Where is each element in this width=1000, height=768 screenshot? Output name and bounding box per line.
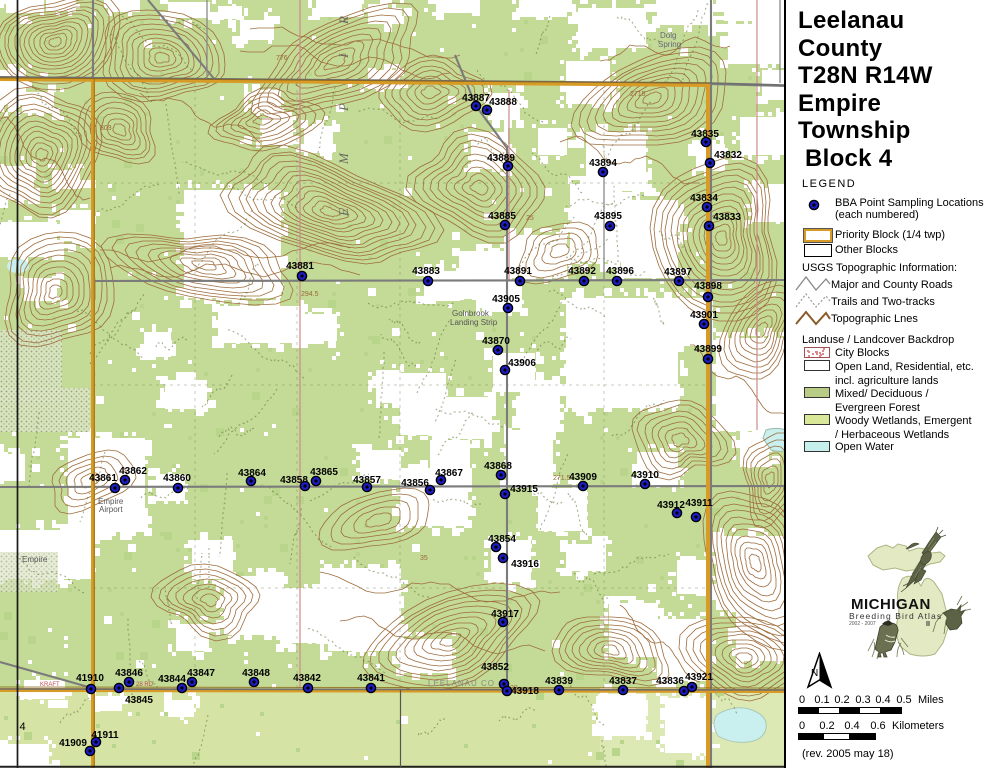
svg-text:43911: 43911: [685, 498, 713, 509]
svg-text:43883: 43883: [412, 266, 440, 277]
svg-text:43852: 43852: [481, 662, 509, 673]
svg-text:43860: 43860: [163, 473, 191, 484]
svg-text:43915: 43915: [510, 484, 538, 495]
svg-text:43896: 43896: [606, 266, 634, 277]
svg-text:KRAFT: KRAFT: [40, 682, 60, 688]
svg-text:43899: 43899: [694, 344, 722, 355]
svg-text:43921: 43921: [685, 672, 713, 683]
svg-text:M: M: [336, 152, 351, 165]
svg-text:Breeding Bird Atlas: Breeding Bird Atlas: [849, 611, 942, 621]
svg-text:294.5: 294.5: [301, 291, 319, 298]
svg-text:271.5: 271.5: [553, 475, 571, 482]
svg-text:43906: 43906: [508, 358, 536, 369]
svg-text:Golnbrook: Golnbrook: [452, 309, 490, 318]
svg-text:43836: 43836: [656, 676, 684, 687]
svg-text:776: 776: [276, 55, 288, 62]
svg-text:Empire: Empire: [22, 555, 48, 564]
svg-text:E: E: [336, 208, 351, 217]
svg-text:N: N: [811, 668, 818, 679]
svg-text:R: R: [336, 16, 351, 25]
svg-text:43891: 43891: [504, 266, 532, 277]
svg-text:43885: 43885: [488, 211, 516, 222]
svg-text:LEELANAU CO: LEELANAU CO: [428, 679, 495, 688]
svg-text:2715: 2715: [630, 91, 646, 98]
svg-text:43861: 43861: [89, 473, 117, 484]
svg-text:43881: 43881: [286, 261, 314, 272]
svg-text:43832: 43832: [714, 150, 742, 161]
svg-text:41910: 41910: [76, 673, 104, 684]
svg-text:4: 4: [20, 721, 26, 733]
svg-text:II: II: [926, 621, 930, 628]
svg-text:25: 25: [526, 215, 534, 222]
svg-text:43868: 43868: [484, 461, 512, 472]
svg-text:43833: 43833: [713, 212, 741, 223]
svg-text:43892: 43892: [568, 266, 596, 277]
svg-text:303: 303: [100, 125, 112, 132]
svg-text:P: P: [336, 103, 351, 112]
svg-text:41909: 41909: [59, 738, 87, 749]
svg-text:43918: 43918: [511, 686, 539, 697]
svg-text:Spring: Spring: [658, 40, 681, 49]
svg-text:43912: 43912: [657, 500, 685, 511]
svg-text:28 RD: 28 RD: [136, 682, 154, 688]
svg-text:I: I: [336, 53, 351, 59]
svg-text:2002 - 2007: 2002 - 2007: [849, 621, 876, 627]
svg-text:43898: 43898: [694, 281, 722, 292]
svg-text:43834: 43834: [690, 193, 718, 204]
svg-text:Airport: Airport: [99, 505, 123, 514]
svg-text:43856: 43856: [401, 478, 429, 489]
svg-text:35: 35: [420, 555, 428, 562]
svg-text:43845: 43845: [125, 695, 153, 706]
svg-text:43895: 43895: [594, 211, 622, 222]
svg-text:43842: 43842: [293, 673, 321, 684]
svg-text:Dolg: Dolg: [660, 31, 676, 40]
svg-text:43916: 43916: [511, 559, 539, 570]
svg-text:43841: 43841: [357, 673, 385, 684]
svg-text:43888: 43888: [489, 97, 517, 108]
svg-text:Landing Strip: Landing Strip: [450, 318, 498, 327]
